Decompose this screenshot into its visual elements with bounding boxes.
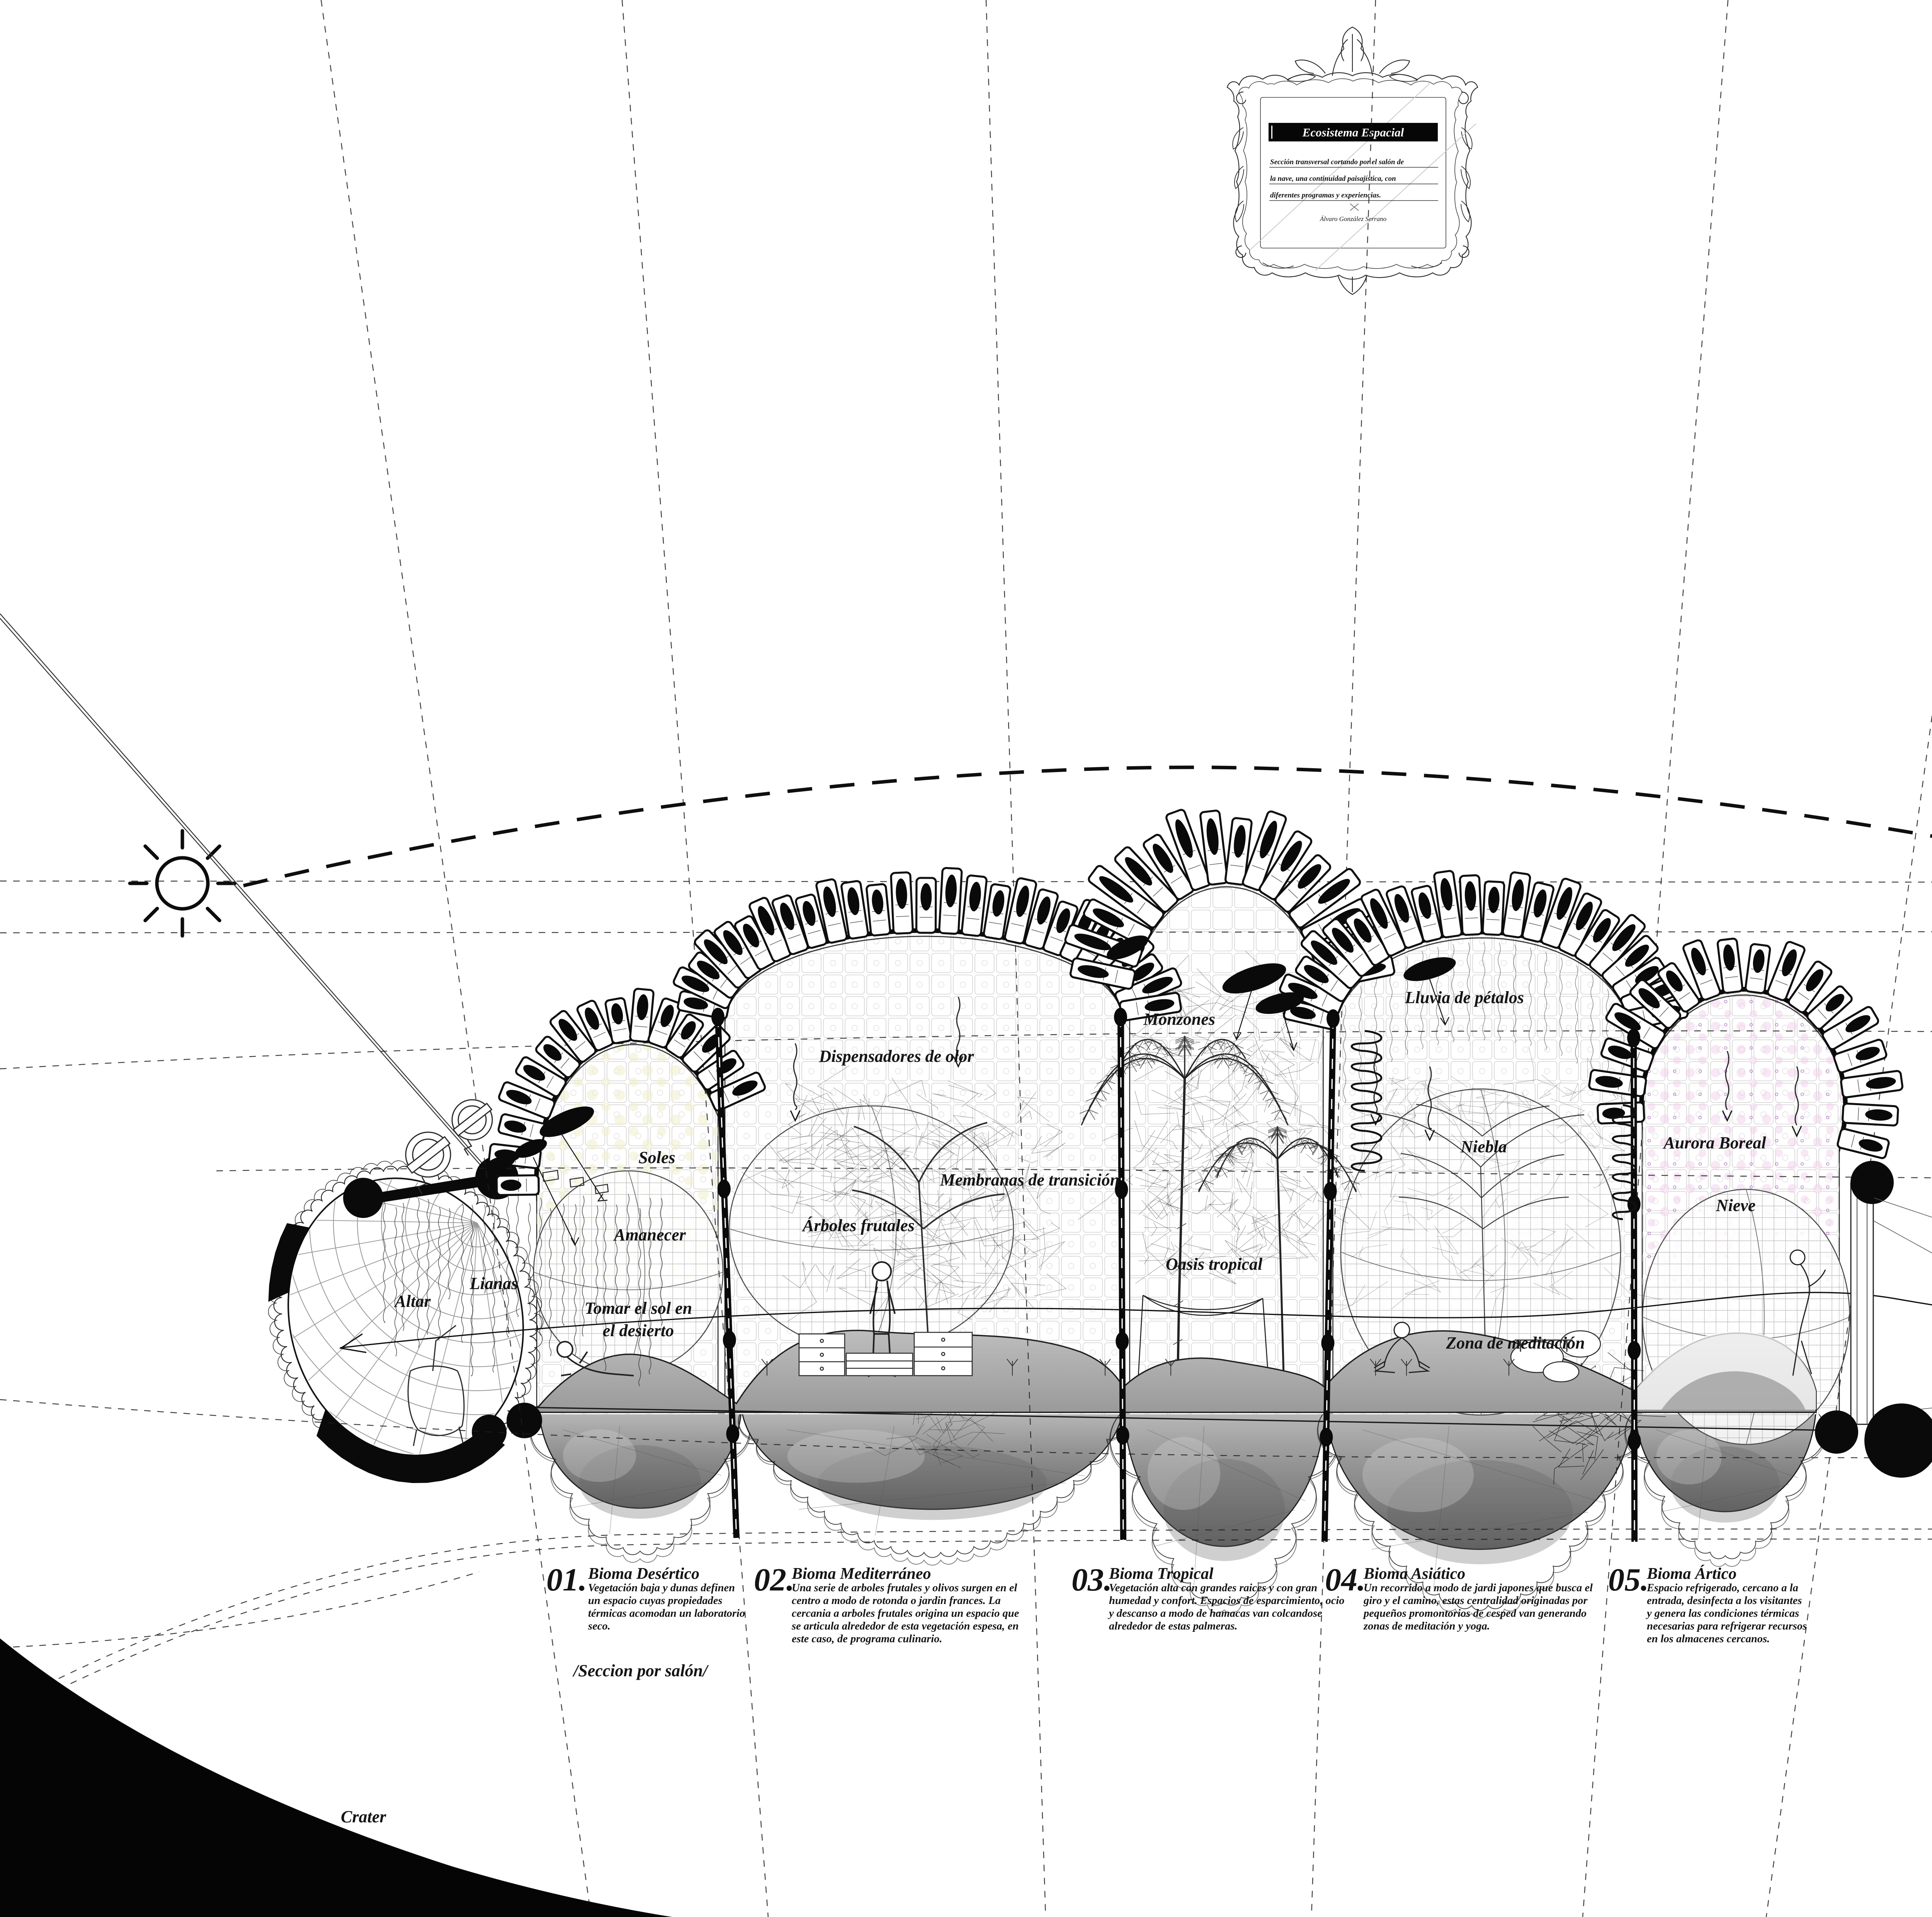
svg-text:04.: 04. <box>1325 1562 1366 1598</box>
svg-text:en los almacenes cercanos.: en los almacenes cercanos. <box>1647 1633 1770 1645</box>
svg-text:la nave, una continuidad paisa: la nave, una continuidad paisajística, c… <box>1270 175 1396 183</box>
svg-text:Membranas de transición: Membranas de transición <box>940 1170 1120 1189</box>
svg-text:Vegetación alta con grandes ra: Vegetación alta con grandes raices y con… <box>1109 1582 1317 1594</box>
svg-text:Bioma Ártico: Bioma Ártico <box>1646 1565 1736 1583</box>
svg-text:05.: 05. <box>1608 1562 1649 1598</box>
svg-text:Altar: Altar <box>394 1292 431 1311</box>
svg-text:Bioma Desértico: Bioma Desértico <box>588 1565 699 1583</box>
svg-text:/Seccion por salón/: /Seccion por salón/ <box>572 1661 709 1680</box>
svg-text:Tomar el sol en: Tomar el sol en <box>585 1299 692 1318</box>
svg-text:un espacio cuyas propiedades: un espacio cuyas propiedades <box>588 1595 723 1607</box>
svg-text:diferentes programas y experie: diferentes programas y experiencias. <box>1270 191 1381 199</box>
svg-text:el desierto: el desierto <box>603 1321 674 1340</box>
svg-text:y genera las condiciones térmi: y genera las condiciones térmicas <box>1646 1607 1799 1619</box>
svg-text:centro a modo de rotonda o jar: centro a modo de rotonda o jardin france… <box>792 1595 1001 1607</box>
svg-text:Nieve: Nieve <box>1716 1196 1756 1215</box>
svg-text:Álvaro González Serrano: Álvaro González Serrano <box>1320 215 1386 223</box>
svg-text:Un recorrido a modo de jardi j: Un recorrido a modo de jardi japones que… <box>1364 1582 1593 1594</box>
svg-text:alrededor de estas palmeras.: alrededor de estas palmeras. <box>1109 1620 1237 1632</box>
svg-text:Monzones: Monzones <box>1143 1010 1215 1029</box>
svg-text:Ecosistema Espacial: Ecosistema Espacial <box>1302 126 1404 139</box>
svg-text:necesarias para refrigerar rec: necesarias para refrigerar recursos <box>1647 1620 1807 1632</box>
svg-text:pequeños promontorios de cespe: pequeños promontorios de cesped van gene… <box>1362 1607 1587 1619</box>
svg-text:Niebla: Niebla <box>1460 1137 1507 1156</box>
svg-text:este caso, de programa culinar: este caso, de programa culinario. <box>792 1633 942 1645</box>
svg-text:y descanso a modo de hamacas v: y descanso a modo de hamacas van colcand… <box>1108 1607 1322 1619</box>
svg-text:02.: 02. <box>754 1562 794 1598</box>
svg-text:Espacio refrigerado, cercano a: Espacio refrigerado, cercano a la <box>1646 1582 1798 1594</box>
svg-text:Sección transversal cortando p: Sección transversal cortando por el saló… <box>1270 158 1404 166</box>
svg-text:Oasis tropical: Oasis tropical <box>1166 1255 1263 1274</box>
svg-text:se articula alrededor de esta: se articula alrededor de esta vegetación… <box>791 1620 1019 1632</box>
svg-text:Lianas: Lianas <box>469 1274 518 1293</box>
svg-text:Crater: Crater <box>341 1807 386 1826</box>
svg-text:cercania a arboles frutales or: cercania a arboles frutales origina un e… <box>792 1607 1019 1619</box>
svg-text:Una serie de arboles frutales: Una serie de arboles frutales y olivos s… <box>792 1582 1017 1594</box>
svg-text:seco.: seco. <box>588 1620 611 1632</box>
svg-text:Bioma Tropical: Bioma Tropical <box>1109 1565 1214 1583</box>
svg-text:térmicas acomodan un laborator: térmicas acomodan un laboratorio <box>588 1607 745 1619</box>
svg-text:humedad y confort. Espacios de: humedad y confort. Espacios de esparcimi… <box>1109 1595 1345 1607</box>
svg-text:Vegetación baja y dunas define: Vegetación baja y dunas definen <box>588 1582 735 1594</box>
svg-text:01.: 01. <box>546 1562 587 1598</box>
svg-text:Aurora Boreal: Aurora Boreal <box>1662 1133 1766 1152</box>
svg-text:zonas de meditación y yoga.: zonas de meditación y yoga. <box>1363 1620 1490 1632</box>
svg-text:Bioma Asiático: Bioma Asiático <box>1363 1565 1465 1583</box>
svg-text:Árboles frutales: Árboles frutales <box>801 1216 915 1235</box>
svg-text:entrada, desinfecta a los visi: entrada, desinfecta a los visitantes <box>1647 1595 1802 1607</box>
svg-text:Zona de meditación: Zona de meditación <box>1446 1334 1585 1352</box>
svg-text:Lluvia de pétalos: Lluvia de pétalos <box>1405 988 1524 1007</box>
svg-text:Soles: Soles <box>638 1148 675 1167</box>
svg-text:Amanecer: Amanecer <box>613 1225 686 1244</box>
svg-text:03.: 03. <box>1071 1562 1112 1598</box>
svg-text:Dispensadores de olor: Dispensadores de olor <box>819 1047 975 1066</box>
svg-text:Bioma Mediterráneo: Bioma Mediterráneo <box>791 1565 931 1583</box>
svg-text:giro y el camino, estas centra: giro y el camino, estas centralidad orig… <box>1363 1595 1588 1607</box>
